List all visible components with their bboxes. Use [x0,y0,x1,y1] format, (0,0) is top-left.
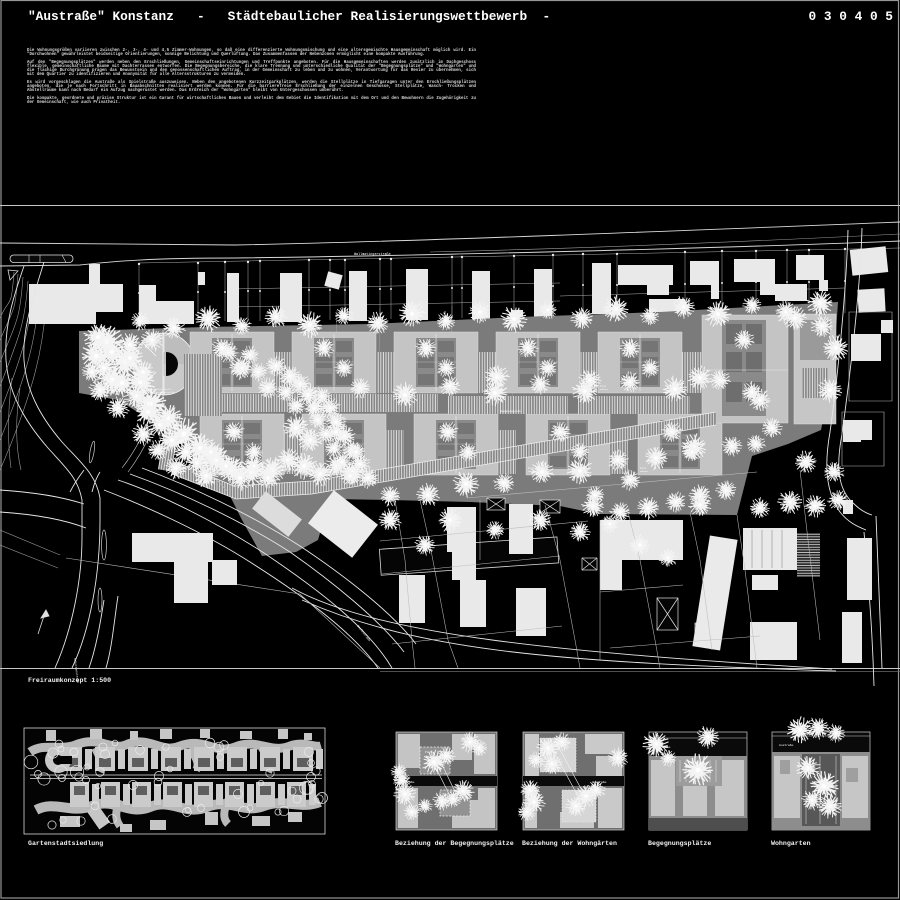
svg-text:0 3 0 4 0 5: 0 3 0 4 0 5 [809,9,894,24]
svg-text:Austraße: Austraße [779,743,794,747]
svg-text:Wohnen: Wohnen [640,470,649,473]
svg-text:Wallmatingerstraße: Wallmatingerstraße [354,252,391,257]
svg-text:Freiraumkonzept 1:500: Freiraumkonzept 1:500 [28,677,111,684]
svg-text:Wohnen: Wohnen [600,388,609,391]
svg-text:Gartenstadtsiedlung: Gartenstadtsiedlung [28,840,103,847]
svg-text:Begegnungsplatz: Begegnungsplatz [500,410,522,413]
svg-text:Wohngarten: Wohngarten [771,840,811,847]
svg-text:"Austraße" Konstanz - Städ: "Austraße" Konstanz - Städtebaulicher Re… [28,9,550,24]
svg-text:Bechtstraße: Bechtstraße [356,624,371,642]
svg-text:Begegnungsplätze: Begegnungsplätze [648,840,711,847]
svg-text:Beziehung der Begegnungsplätze: Beziehung der Begegnungsplätze [395,840,514,847]
svg-text:Beziehung der Wohngärten: Beziehung der Wohngärten [522,840,617,847]
